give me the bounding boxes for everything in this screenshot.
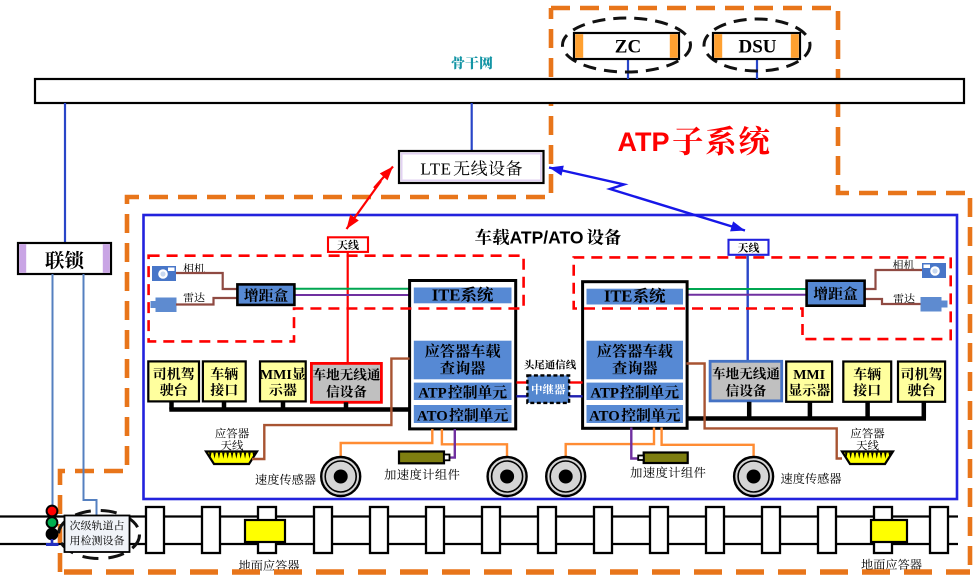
svg-text:ATO: ATO	[589, 409, 620, 425]
svg-text:ATP: ATP	[618, 127, 670, 157]
svg-text:MMI: MMI	[793, 368, 825, 383]
svg-text:ZC: ZC	[615, 37, 641, 58]
svg-text:ATO: ATO	[417, 409, 448, 425]
svg-text:LTE: LTE	[420, 160, 451, 179]
svg-text:DSU: DSU	[739, 37, 777, 58]
svg-text:ATP: ATP	[418, 386, 447, 402]
svg-text:ATP/ATO: ATP/ATO	[510, 228, 584, 248]
svg-text:ITE: ITE	[604, 287, 632, 306]
svg-text:ITE: ITE	[432, 286, 460, 305]
svg-text:MMI: MMI	[260, 368, 292, 383]
svg-text:ATP: ATP	[590, 386, 619, 402]
